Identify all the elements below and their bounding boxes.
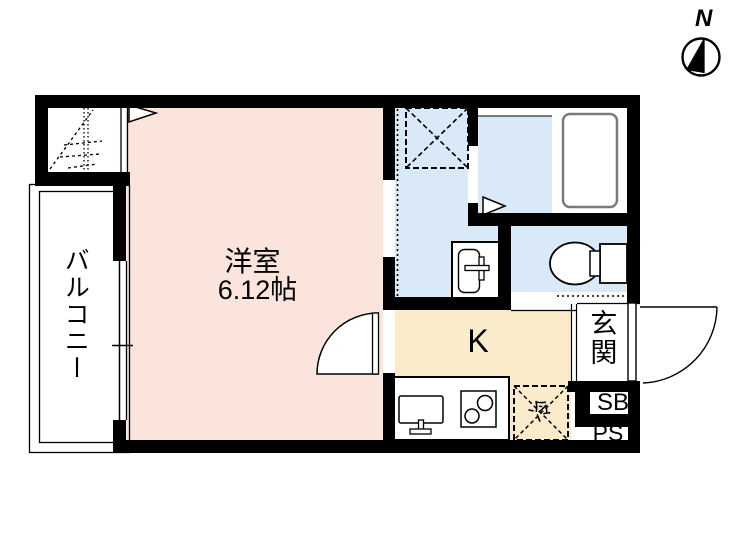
main-room-size: 6.12帖 [160,276,355,304]
north-label: N [695,6,712,31]
bathroom-edge [478,107,552,116]
kitchen-label: K [448,325,508,359]
kitchen-stove-icon [461,391,496,427]
toilet-icon [550,243,627,285]
washbasin-icon [452,242,499,300]
sink-faucet-base [410,429,431,434]
floor-plan: N バルコニー 洋室 6.12帖 K 玄関 SB PS 冷 [0,0,750,550]
entrance-door-swing [628,303,717,383]
compass-icon [683,38,720,76]
balcony-label: バルコニー [62,247,88,382]
shoe-box-label: SB [591,390,635,415]
main-room-label: 洋室 [160,247,345,276]
staircase-hatch [50,108,102,171]
pipe-space-label: PS [586,421,630,445]
kitchen-sink-icon [399,396,443,423]
entrance-label: 玄関 [587,309,615,367]
bathtub-icon [563,114,617,207]
floor-plan-drawing [0,0,750,550]
bathroom-floor [478,116,552,213]
kitchen-counter [388,377,509,440]
